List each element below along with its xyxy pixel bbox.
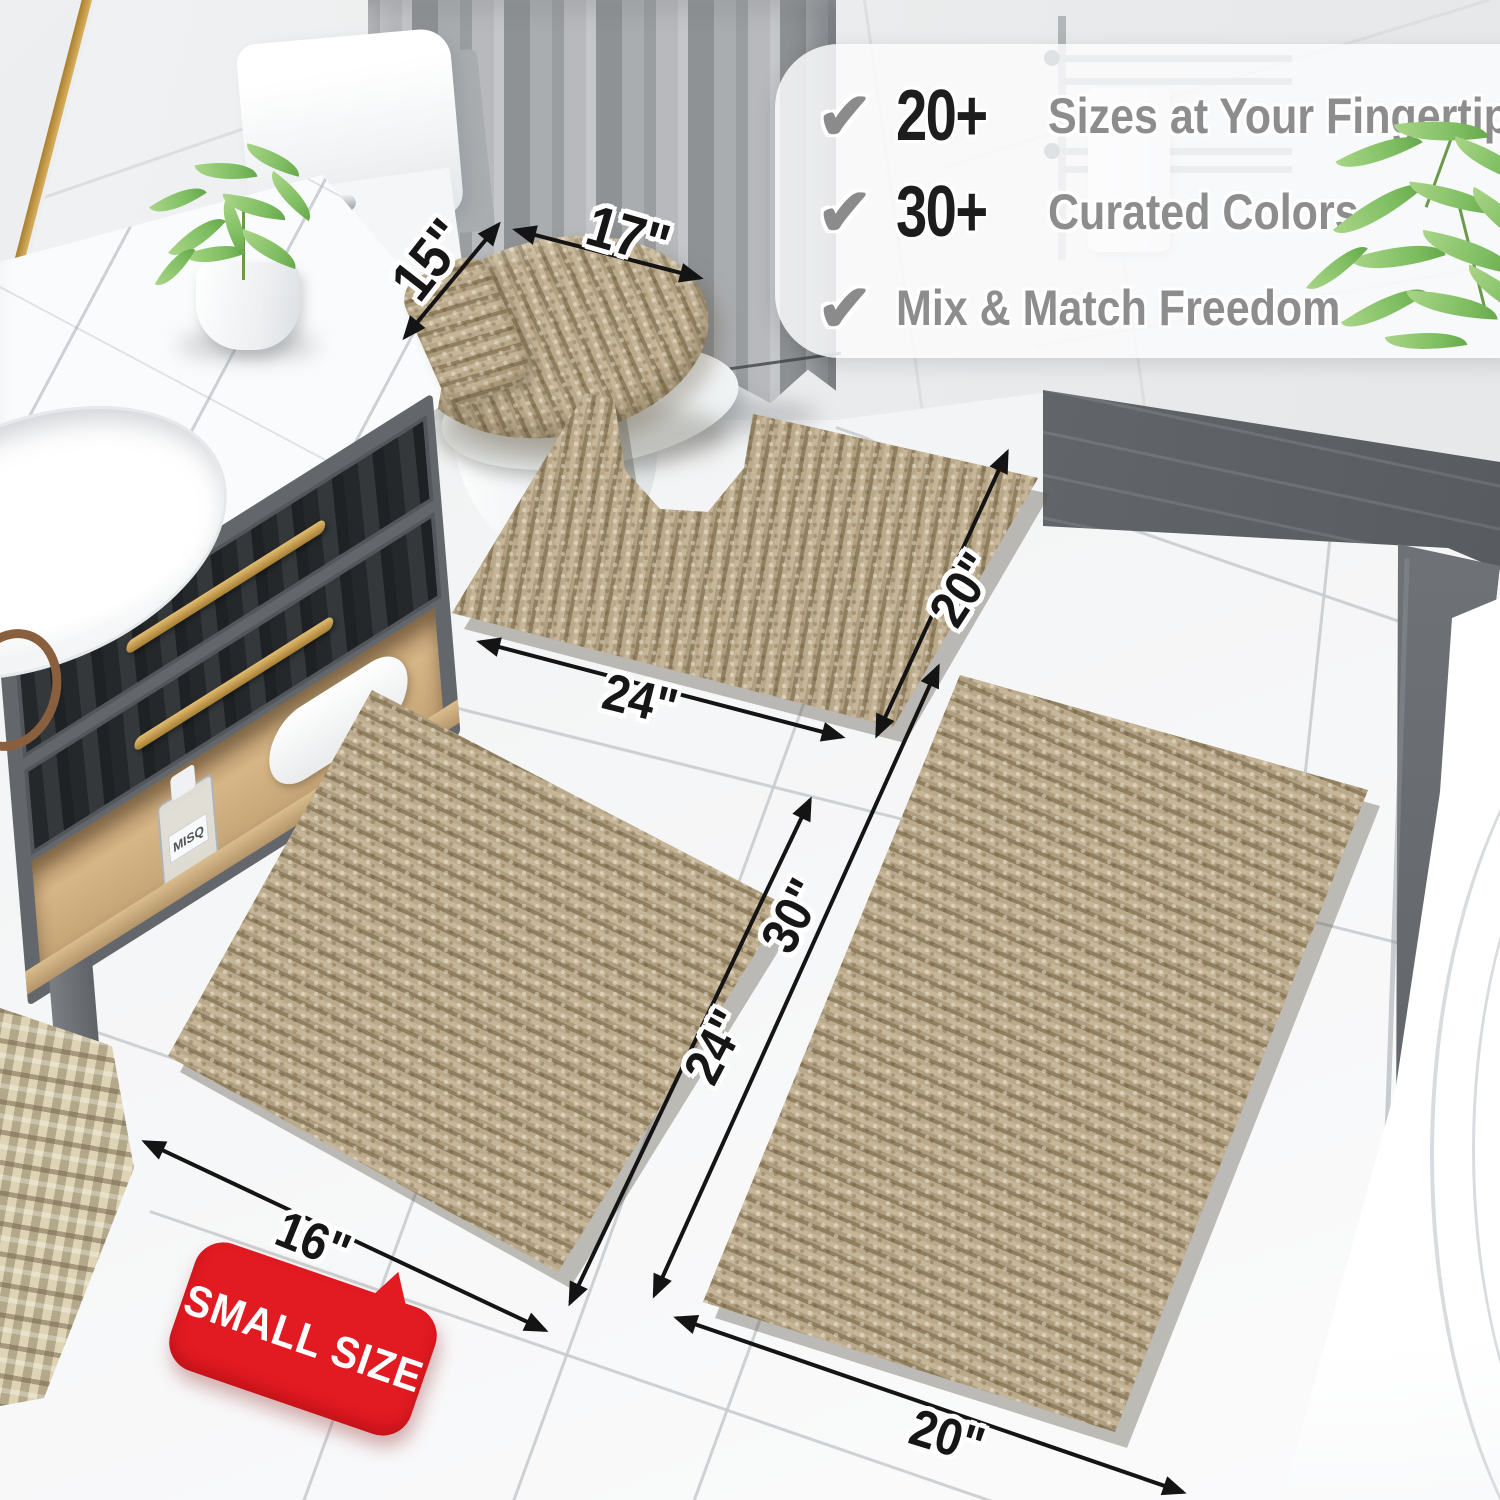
check-icon: ✔ bbox=[817, 83, 872, 149]
check-icon: ✔ bbox=[817, 179, 872, 245]
product-image: MISQ 15" 17" 24" 20" 24" 30" 16" 20" bbox=[0, 0, 1500, 1500]
feature-label: Curated Colors bbox=[1048, 187, 1359, 237]
feature-number: 20+ bbox=[896, 80, 996, 152]
check-icon: ✔ bbox=[817, 275, 872, 341]
feature-label: Mix & Match Freedom bbox=[896, 283, 1340, 333]
perfume-label: MISQ bbox=[168, 812, 209, 863]
plant-pot bbox=[196, 262, 300, 350]
feature-row: ✔ 30+ Curated Colors bbox=[817, 164, 1500, 260]
feature-number: 30+ bbox=[896, 176, 996, 248]
